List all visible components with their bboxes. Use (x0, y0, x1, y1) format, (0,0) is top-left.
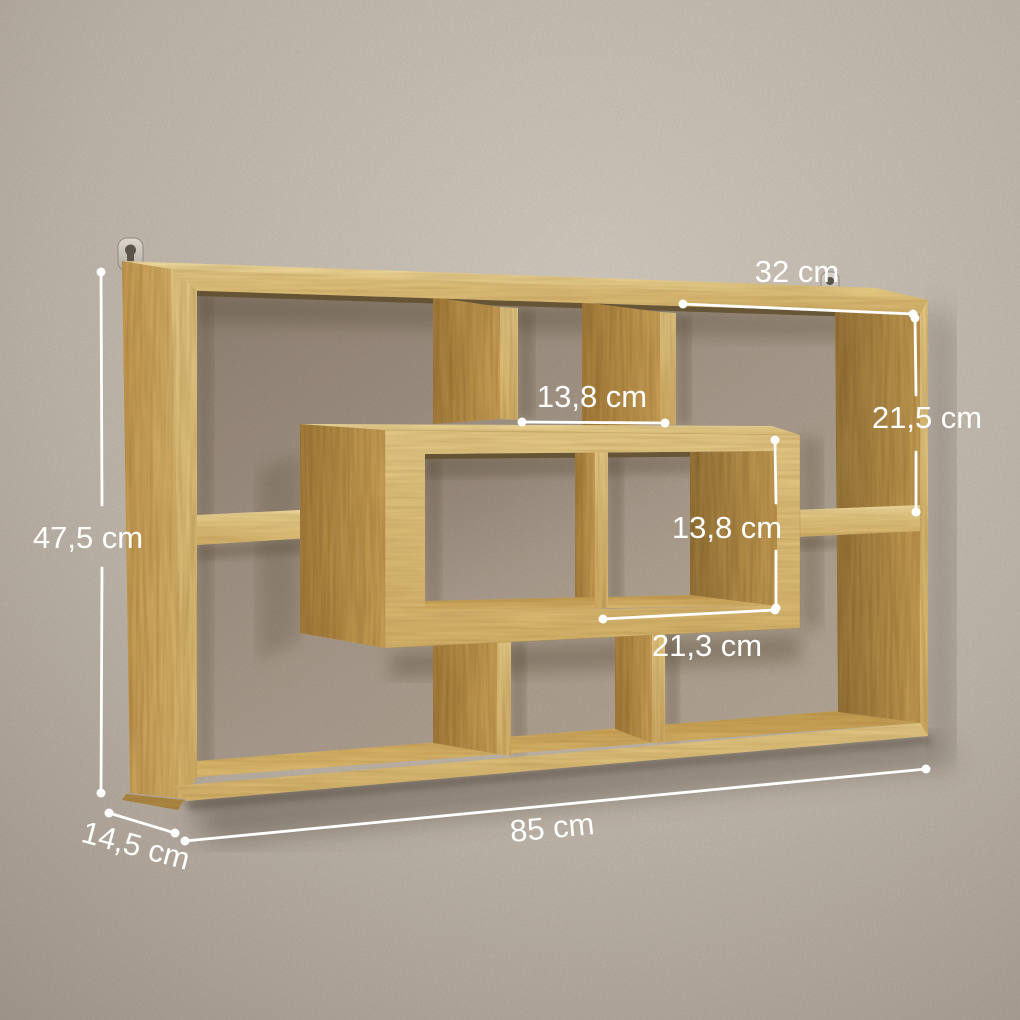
bottom-divider-left-front-face (497, 640, 511, 756)
bottom-divider-left-side-face (433, 640, 497, 754)
dimension-line (101, 568, 102, 793)
dimension-endpoint-dot (911, 314, 920, 323)
center-box-left-side-face (300, 424, 385, 648)
dimension-line (775, 440, 776, 503)
dimension-label: 13,8 cm (672, 510, 782, 545)
dimension-endpoint-dot (97, 789, 106, 798)
dimension-line (522, 422, 665, 423)
dimension-endpoint-dot (771, 436, 780, 445)
product-image: 47,5 cm 85 cm 14,5 cm 32 cm 21,5 cm (0, 0, 1020, 1020)
dimension-endpoint-dot (661, 419, 670, 428)
shelf-dimension-illustration: 47,5 cm 85 cm 14,5 cm 32 cm 21,5 cm (0, 0, 1020, 1020)
top-divider-right-front-face (660, 312, 676, 425)
dimension-line (915, 318, 916, 395)
right-stile-front-face (920, 300, 928, 736)
dimension-label: 21,3 cm (652, 628, 762, 663)
dimension-label: 47,5 cm (33, 520, 143, 555)
top-divider-left-front-face (500, 307, 518, 420)
dimension-endpoint-dot (599, 615, 608, 624)
dimension-endpoint-dot (518, 418, 527, 427)
dimension-endpoint-dot (97, 268, 106, 277)
dimension-endpoint-dot (105, 809, 114, 818)
bottom-divider-right-side-face (615, 630, 652, 743)
dimension-endpoint-dot (922, 765, 931, 774)
dimension-endpoint-dot (912, 508, 921, 517)
top-divider-left-side-face (433, 297, 500, 424)
dimension-label: 21,5 cm (872, 400, 982, 435)
dimension-endpoint-dot (771, 606, 780, 615)
dimension-label: 32 cm (755, 254, 839, 289)
dimension-label: 13,8 cm (537, 379, 647, 414)
dimension-endpoint-dot (679, 300, 688, 309)
center-box-divider-front-face (595, 452, 608, 609)
center-box-divider-side-face (575, 452, 595, 611)
dimension-line (101, 272, 102, 505)
